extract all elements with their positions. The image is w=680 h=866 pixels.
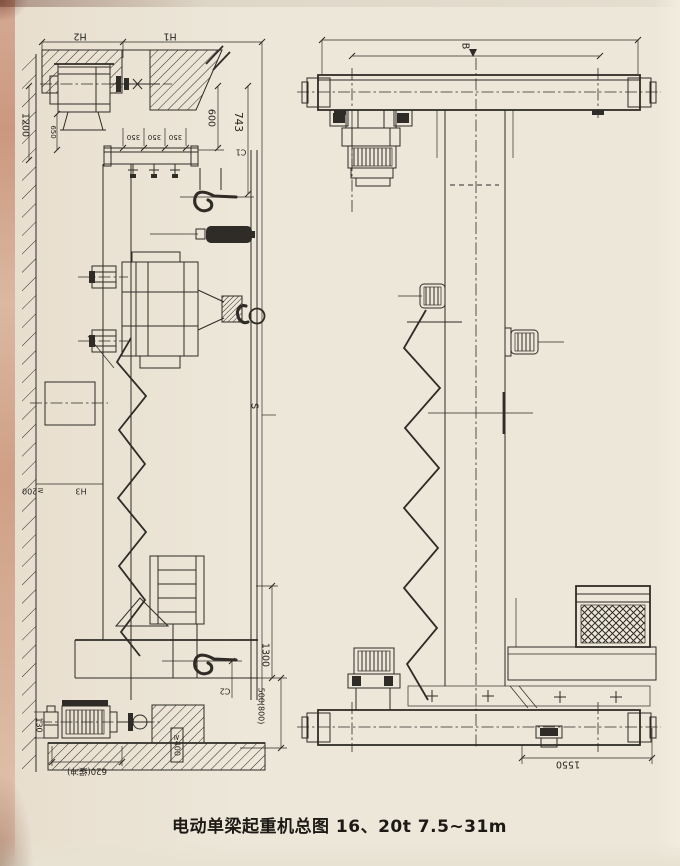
dim-label-ge200: ≥200 <box>22 487 44 496</box>
hoist-front <box>330 110 412 215</box>
end-carriage-side: C2 <box>75 556 258 698</box>
dim-label-350-2: 350 <box>148 133 161 141</box>
dim-743: 743 C1 <box>232 83 251 197</box>
dim-1300: 1300 <box>256 583 287 681</box>
hook-lower-symbol <box>195 655 236 674</box>
dim-label-h1: H1 <box>163 31 176 42</box>
dim-label-743: 743 <box>232 112 244 132</box>
dim-label-350-1: 350 <box>127 133 140 141</box>
dim-label-c1: C1 <box>236 148 247 157</box>
runway-rail-bracket: 350 350 350 <box>104 128 198 178</box>
cross-travel-motor-right <box>505 328 564 356</box>
side-view: H2 H1 1200 <box>20 31 288 777</box>
column-section <box>30 382 108 425</box>
dim-650: 650 <box>49 111 60 153</box>
crane-general-drawing: H2 H1 1200 <box>0 0 680 866</box>
dim-500-800: 500(800) <box>240 675 287 751</box>
cross-travel-motor-left <box>398 284 462 322</box>
electrical-cabinet <box>576 586 650 647</box>
dim-label-c2: C2 <box>220 687 231 696</box>
caption: 电动单梁起重机总图 16、20t 7.5~31m <box>172 816 507 837</box>
hoist-trolley-side <box>78 252 265 368</box>
hoist-rope-zigzag <box>404 310 440 700</box>
pendant-controller <box>150 226 255 243</box>
dim-label-500-800: 500(800) <box>257 688 266 725</box>
drawing-photo: H2 H1 1200 <box>0 0 680 866</box>
girder-end <box>428 58 533 748</box>
dim-B: B <box>319 37 641 74</box>
dim-label-650: 650 <box>49 125 57 138</box>
hook-upper-symbol <box>180 168 254 211</box>
dim-label-1200: 1200 <box>20 113 31 137</box>
dim-label-1550: 1550 <box>556 759 580 770</box>
cabinet-mesh <box>581 605 645 643</box>
dim-label-130: 130 <box>35 717 44 732</box>
dim-label-350-3: 350 <box>169 133 182 141</box>
dim-label-h2: H2 <box>73 31 86 42</box>
ground-hatch <box>48 743 265 770</box>
dim-label-span: S <box>249 403 260 409</box>
long-travel-motor <box>348 648 400 710</box>
runway-wall-hatch <box>22 54 36 772</box>
ceiling-hatch <box>42 46 230 110</box>
end-view: B <box>297 37 661 770</box>
dim-label-b: B <box>460 43 471 50</box>
dim-label-1300: 1300 <box>260 643 271 667</box>
dim-label-h3: H3 <box>75 487 86 496</box>
dim-label-600: 600 <box>206 109 217 127</box>
bottom-end-beam <box>297 702 661 752</box>
dim-1550: 1550 <box>519 728 655 770</box>
